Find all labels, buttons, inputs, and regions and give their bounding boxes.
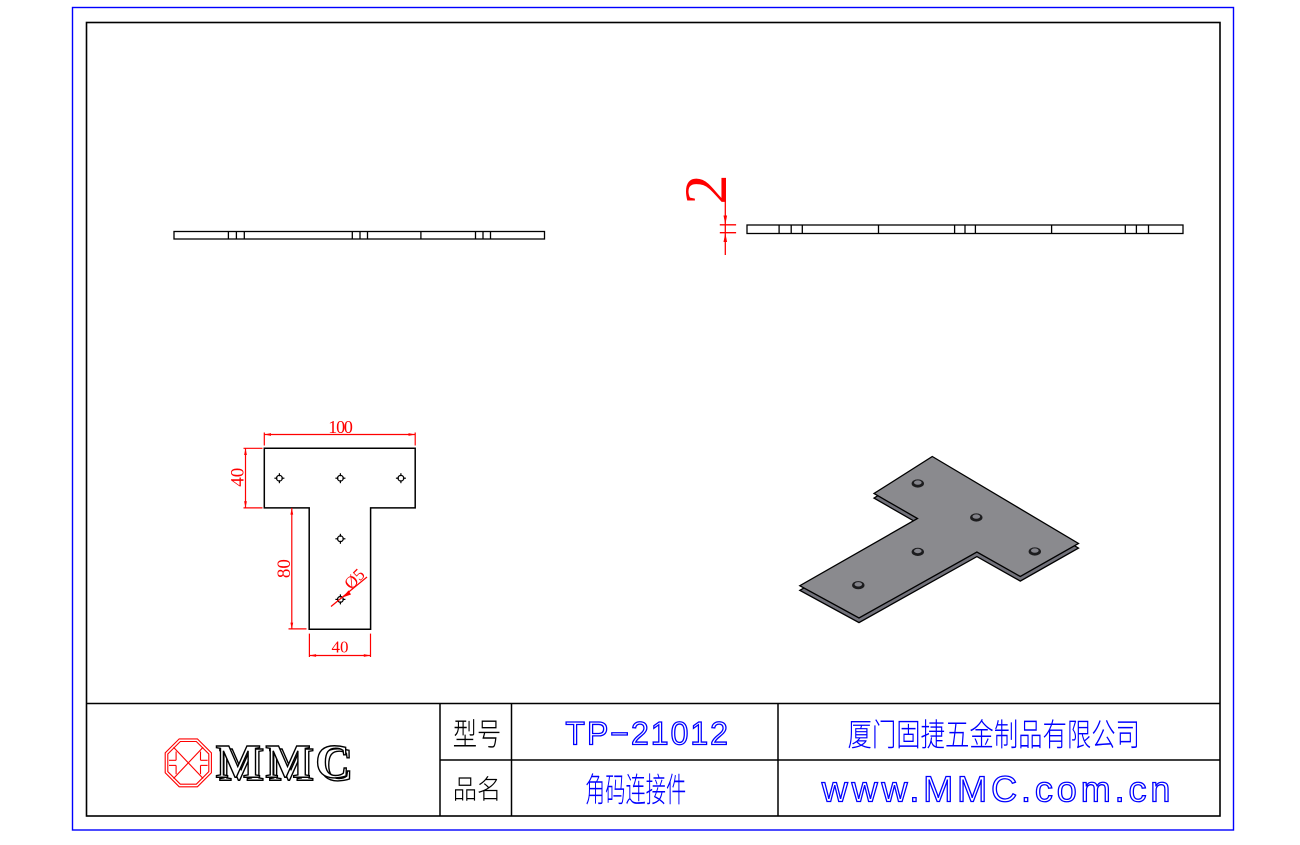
svg-text:TP−21012: TP−21012: [565, 716, 730, 752]
svg-text:www.MMC.com.cn: www.MMC.com.cn: [821, 769, 1175, 810]
svg-text:40: 40: [228, 468, 249, 487]
svg-text:80: 80: [274, 559, 295, 578]
svg-text:40: 40: [332, 638, 349, 657]
svg-text:100: 100: [328, 417, 353, 437]
svg-text:2: 2: [673, 175, 739, 205]
svg-text:MMC: MMC: [216, 736, 355, 789]
